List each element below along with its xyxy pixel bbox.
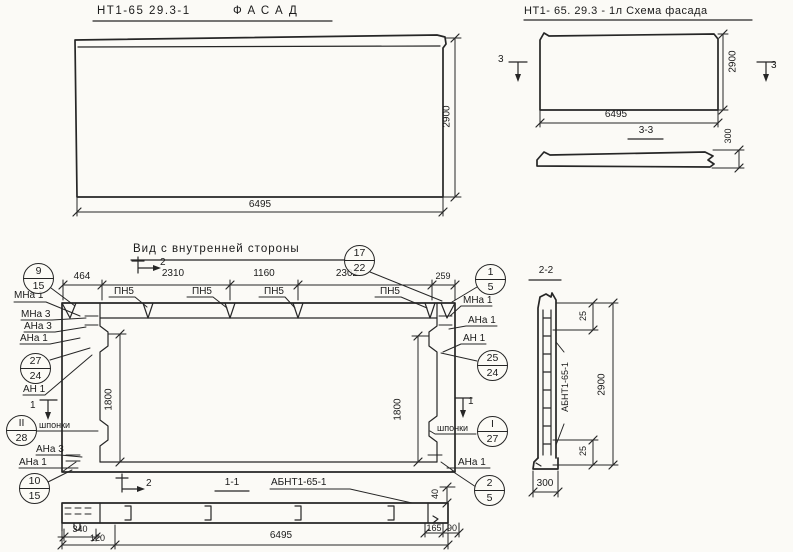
section-2-marker-top: 2 <box>160 257 166 268</box>
anchor-label-an1-left: АН 1 <box>23 384 45 395</box>
callout-25-24: 2524 <box>477 350 508 381</box>
anchor-label-ana1-left-bottom: АНа 1 <box>19 457 47 468</box>
section-3-marker-left: 3 <box>498 54 504 65</box>
section-1-marker-right: 1 <box>468 396 474 407</box>
facade-view <box>73 34 461 216</box>
dim-464: 464 <box>64 271 100 282</box>
anchor-label-ana3-left: АНа 3 <box>24 321 52 332</box>
callout-II-28: II28 <box>6 415 37 446</box>
dim-300-section: 300 <box>528 478 562 489</box>
facade-title-code: НТ1-65 29.3-1 <box>97 5 191 18</box>
callout-27-24: 2724 <box>20 353 51 384</box>
section-3-marker-right: 3 <box>771 60 777 71</box>
anchor-label-mna3-left: МНа 3 <box>21 309 50 320</box>
anchor-label-ana1-right: АНа 1 <box>468 315 496 326</box>
scheme-dim-height: 2900 <box>728 45 739 79</box>
interior-dimensions <box>40 257 472 492</box>
callout-I-27: I27 <box>477 416 508 447</box>
scheme-dim-width: 6495 <box>594 109 638 120</box>
section-2-2-title: 2-2 <box>530 265 562 276</box>
facade-dim-width: 6495 <box>238 199 282 210</box>
dim-6495-bottom: 6495 <box>259 530 303 541</box>
abnt-label: АБНТ1-65-1 <box>271 477 326 488</box>
scheme-strip-thickness: 300 <box>724 121 734 151</box>
pn5-label-2: ПН5 <box>188 286 216 297</box>
pn5-label-4: ПН5 <box>376 286 404 297</box>
callout-9-15: 915 <box>23 263 54 294</box>
anchor-label-an1-right: АН 1 <box>463 333 485 344</box>
interior-title: Вид с внутренней стороны <box>133 243 300 256</box>
dim-2310: 2310 <box>151 268 195 279</box>
dim-1160: 1160 <box>242 268 286 279</box>
anchor-label-ana3-left-bottom: АНа 3 <box>36 444 64 455</box>
shponki-label-right: шпонки <box>437 424 468 434</box>
section-2-marker-bottom: 2 <box>146 478 152 489</box>
anchor-label-mna1-right: МНа 1 <box>463 295 492 306</box>
interior-view <box>62 303 455 472</box>
scheme-title: НТ1- 65. 29.3 - 1л Схема фасада <box>524 5 708 17</box>
dim-90: 90 <box>444 524 460 534</box>
pn5-label-1: ПН5 <box>110 286 138 297</box>
dim-120: 120 <box>90 534 105 544</box>
callout-10-15: 1015 <box>19 473 50 504</box>
dim-1800-left: 1800 <box>104 383 115 417</box>
anchor-label-ana1-left: АНа 1 <box>20 333 48 344</box>
drawing-linework <box>0 0 793 552</box>
section-1-marker-left: 1 <box>30 400 36 411</box>
dim-40: 40 <box>431 479 441 509</box>
abnt-label-rotated: АБНТ1-65-1 <box>561 347 571 427</box>
dim-165: 165 <box>425 524 443 534</box>
dim-25-top: 25 <box>579 302 589 330</box>
dim-1800-right: 1800 <box>393 393 404 427</box>
callout-2-5: 25 <box>474 475 505 506</box>
dim-25-bottom: 25 <box>579 437 589 465</box>
facade-dim-height: 2900 <box>442 100 453 134</box>
drawing-sheet: НТ1-65 29.3-1 ФАСАД 6495 2900 НТ1- 65. 2… <box>0 0 793 552</box>
section-3-3-title: 3-3 <box>628 125 664 136</box>
facade-title-name: ФАСАД <box>233 5 303 18</box>
callout-17-22: 1722 <box>344 245 375 276</box>
callout-1-5: 15 <box>475 264 506 295</box>
dim-2900-section: 2900 <box>597 368 608 402</box>
dim-259: 259 <box>428 272 458 282</box>
anchor-label-ana1-right-bottom: АНа 1 <box>458 457 486 468</box>
shponki-label-left: шпонки <box>39 421 70 431</box>
pn5-label-3: ПН5 <box>260 286 288 297</box>
section-1-1-title: 1-1 <box>216 477 248 488</box>
